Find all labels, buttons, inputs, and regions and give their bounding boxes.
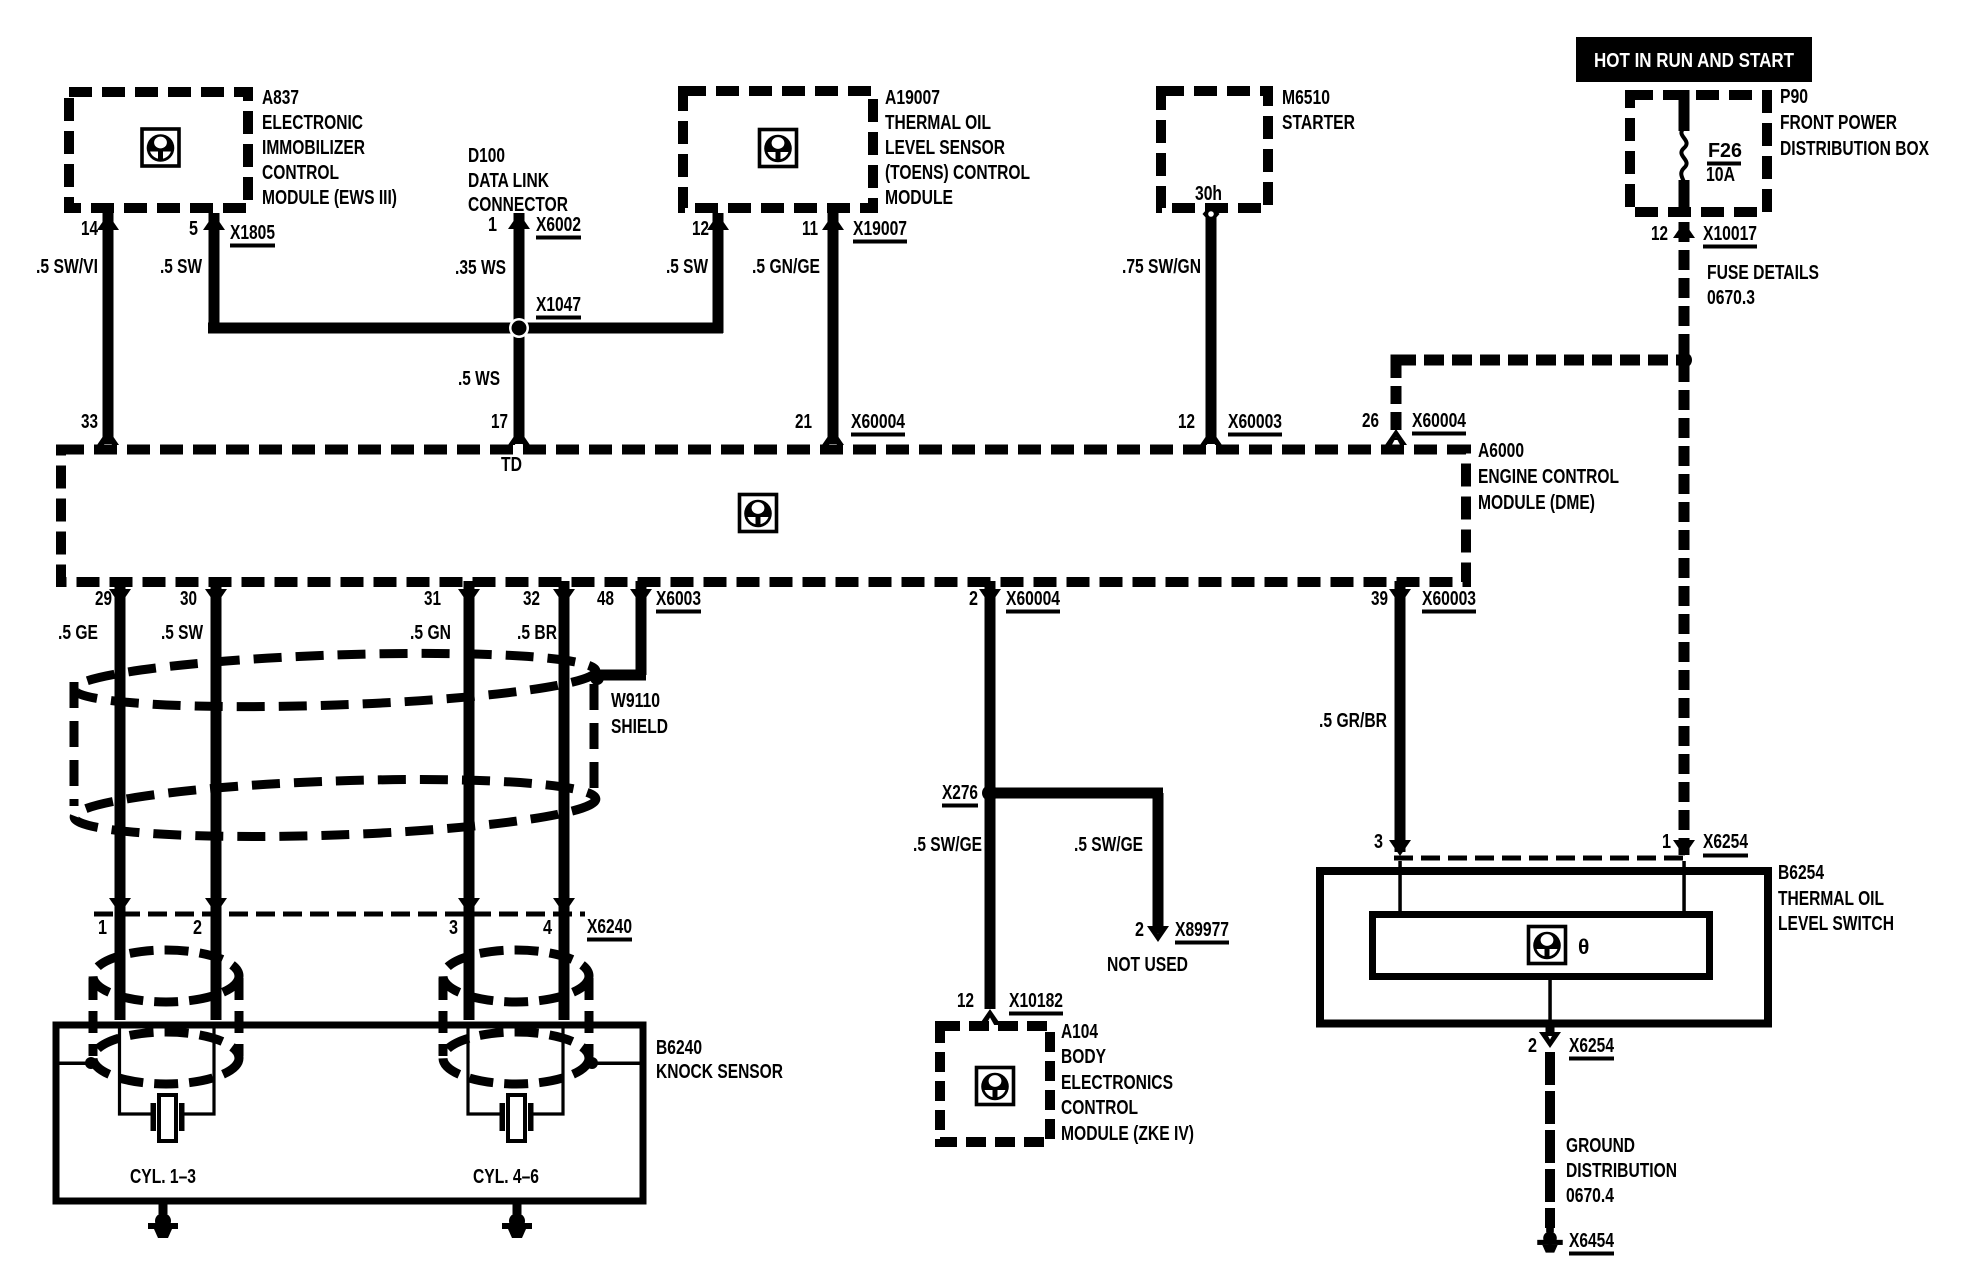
svg-text:21: 21 [795, 411, 812, 433]
svg-text:X1805: X1805 [230, 222, 275, 244]
svg-text:P90: P90 [1780, 86, 1808, 108]
svg-text:CONTROL: CONTROL [1061, 1097, 1138, 1119]
svg-text:32: 32 [523, 588, 540, 610]
svg-text:DATA LINK: DATA LINK [468, 170, 549, 192]
svg-text:MODULE: MODULE [885, 187, 953, 209]
svg-text:X60003: X60003 [1422, 588, 1476, 610]
svg-text:X1047: X1047 [536, 294, 581, 316]
svg-text:.5 SW/GE: .5 SW/GE [1074, 834, 1143, 856]
svg-text:TD: TD [501, 454, 522, 476]
svg-text:DISTRIBUTION BOX: DISTRIBUTION BOX [1780, 138, 1930, 160]
svg-text:X19007: X19007 [853, 218, 907, 240]
svg-text:30h: 30h [1195, 183, 1222, 205]
svg-text:12: 12 [1178, 411, 1195, 433]
svg-text:.5 SW: .5 SW [666, 256, 708, 278]
svg-text:A104: A104 [1061, 1021, 1099, 1043]
svg-text:THERMAL OIL: THERMAL OIL [1778, 888, 1884, 910]
svg-text:X6240: X6240 [587, 916, 632, 938]
svg-text:.5 SW: .5 SW [161, 622, 203, 644]
svg-text:14: 14 [81, 218, 99, 240]
svg-text:26: 26 [1362, 410, 1379, 432]
svg-text:.5 SW/GE: .5 SW/GE [913, 834, 982, 856]
svg-text:10A: 10A [1706, 164, 1735, 186]
svg-text:X276: X276 [942, 782, 978, 804]
svg-text:STARTER: STARTER [1282, 112, 1355, 134]
svg-text:17: 17 [491, 411, 508, 433]
svg-text:2: 2 [193, 917, 202, 939]
svg-text:X6002: X6002 [536, 214, 581, 236]
svg-text:HOT IN RUN AND START: HOT IN RUN AND START [1594, 50, 1794, 72]
svg-text:A6000: A6000 [1478, 440, 1524, 462]
svg-text:NOT USED: NOT USED [1107, 954, 1188, 976]
svg-text:X89977: X89977 [1175, 919, 1229, 941]
svg-text:1: 1 [488, 214, 497, 236]
svg-text:X10017: X10017 [1703, 223, 1757, 245]
svg-text:X6254: X6254 [1703, 831, 1749, 853]
svg-text:3: 3 [449, 917, 458, 939]
svg-text:X60004: X60004 [1006, 588, 1061, 610]
svg-text:A837: A837 [262, 87, 299, 109]
svg-text:X60004: X60004 [851, 411, 906, 433]
svg-text:LEVEL SENSOR: LEVEL SENSOR [885, 137, 1005, 159]
svg-text:MODULE (ZKE IV): MODULE (ZKE IV) [1061, 1123, 1194, 1145]
svg-text:33: 33 [81, 411, 98, 433]
svg-text:31: 31 [424, 588, 441, 610]
svg-text:39: 39 [1371, 588, 1388, 610]
svg-text:θ: θ [1578, 936, 1589, 959]
svg-text:3: 3 [1374, 831, 1383, 853]
svg-text:2: 2 [1528, 1035, 1537, 1057]
svg-text:.5 WS: .5 WS [458, 368, 500, 390]
svg-text:4: 4 [543, 917, 553, 939]
svg-text:48: 48 [597, 588, 614, 610]
svg-text:F26: F26 [1708, 140, 1742, 162]
svg-text:11: 11 [802, 218, 818, 240]
svg-text:0670.4: 0670.4 [1566, 1185, 1615, 1207]
svg-text:CYL. 4–6: CYL. 4–6 [473, 1166, 539, 1188]
svg-text:(TOENS) CONTROL: (TOENS) CONTROL [885, 162, 1030, 184]
svg-text:SHIELD: SHIELD [611, 716, 668, 738]
svg-text:CONNECTOR: CONNECTOR [468, 194, 568, 216]
svg-text:CYL. 1–3: CYL. 1–3 [130, 1166, 196, 1188]
svg-text:.5 GR/BR: .5 GR/BR [1319, 710, 1387, 732]
svg-text:.5 BR: .5 BR [517, 622, 557, 644]
svg-text:X60003: X60003 [1228, 411, 1282, 433]
svg-text:B6240: B6240 [656, 1037, 702, 1059]
svg-text:12: 12 [692, 218, 709, 240]
svg-text:GROUND: GROUND [1566, 1135, 1635, 1157]
svg-text:X6254: X6254 [1569, 1035, 1615, 1057]
svg-text:.5 SW/VI: .5 SW/VI [36, 256, 98, 278]
svg-text:A19007: A19007 [885, 87, 940, 109]
svg-text:X6003: X6003 [656, 588, 701, 610]
svg-text:B6254: B6254 [1778, 862, 1825, 884]
svg-text:FUSE DETAILS: FUSE DETAILS [1707, 262, 1819, 284]
svg-text:12: 12 [957, 990, 974, 1012]
svg-text:MODULE (DME): MODULE (DME) [1478, 492, 1595, 514]
svg-text:D100: D100 [468, 145, 505, 167]
svg-text:5: 5 [189, 218, 198, 240]
svg-text:ELECTRONICS: ELECTRONICS [1061, 1072, 1173, 1094]
svg-text:ELECTRONIC: ELECTRONIC [262, 112, 363, 134]
svg-text:1: 1 [1662, 831, 1671, 853]
svg-text:0670.3: 0670.3 [1707, 287, 1755, 309]
svg-text:2: 2 [1135, 919, 1144, 941]
svg-text:LEVEL SWITCH: LEVEL SWITCH [1778, 913, 1894, 935]
svg-text:12: 12 [1651, 223, 1668, 245]
svg-text:.5 SW: .5 SW [160, 256, 202, 278]
svg-text:30: 30 [180, 588, 197, 610]
svg-text:.35 WS: .35 WS [455, 257, 506, 279]
svg-text:IMMOBILIZER: IMMOBILIZER [262, 137, 365, 159]
svg-text:KNOCK SENSOR: KNOCK SENSOR [656, 1061, 783, 1083]
svg-text:M6510: M6510 [1282, 87, 1330, 109]
svg-text:ENGINE CONTROL: ENGINE CONTROL [1478, 466, 1619, 488]
svg-text:.75 SW/GN: .75 SW/GN [1122, 256, 1201, 278]
svg-text:FRONT POWER: FRONT POWER [1780, 112, 1897, 134]
svg-text:2: 2 [969, 588, 978, 610]
svg-text:X10182: X10182 [1009, 990, 1063, 1012]
svg-text:.5 GN/GE: .5 GN/GE [752, 256, 820, 278]
svg-text:BODY: BODY [1061, 1046, 1107, 1068]
svg-text:.5 GE: .5 GE [58, 622, 98, 644]
svg-text:.5 GN: .5 GN [410, 622, 451, 644]
svg-text:W9110: W9110 [611, 690, 660, 712]
svg-text:X6454: X6454 [1569, 1230, 1615, 1252]
svg-text:MODULE (EWS III): MODULE (EWS III) [262, 187, 397, 209]
svg-text:THERMAL OIL: THERMAL OIL [885, 112, 991, 134]
svg-text:CONTROL: CONTROL [262, 162, 339, 184]
svg-text:29: 29 [95, 588, 112, 610]
svg-text:X60004: X60004 [1412, 410, 1467, 432]
svg-text:1: 1 [98, 917, 107, 939]
svg-text:DISTRIBUTION: DISTRIBUTION [1566, 1160, 1677, 1182]
